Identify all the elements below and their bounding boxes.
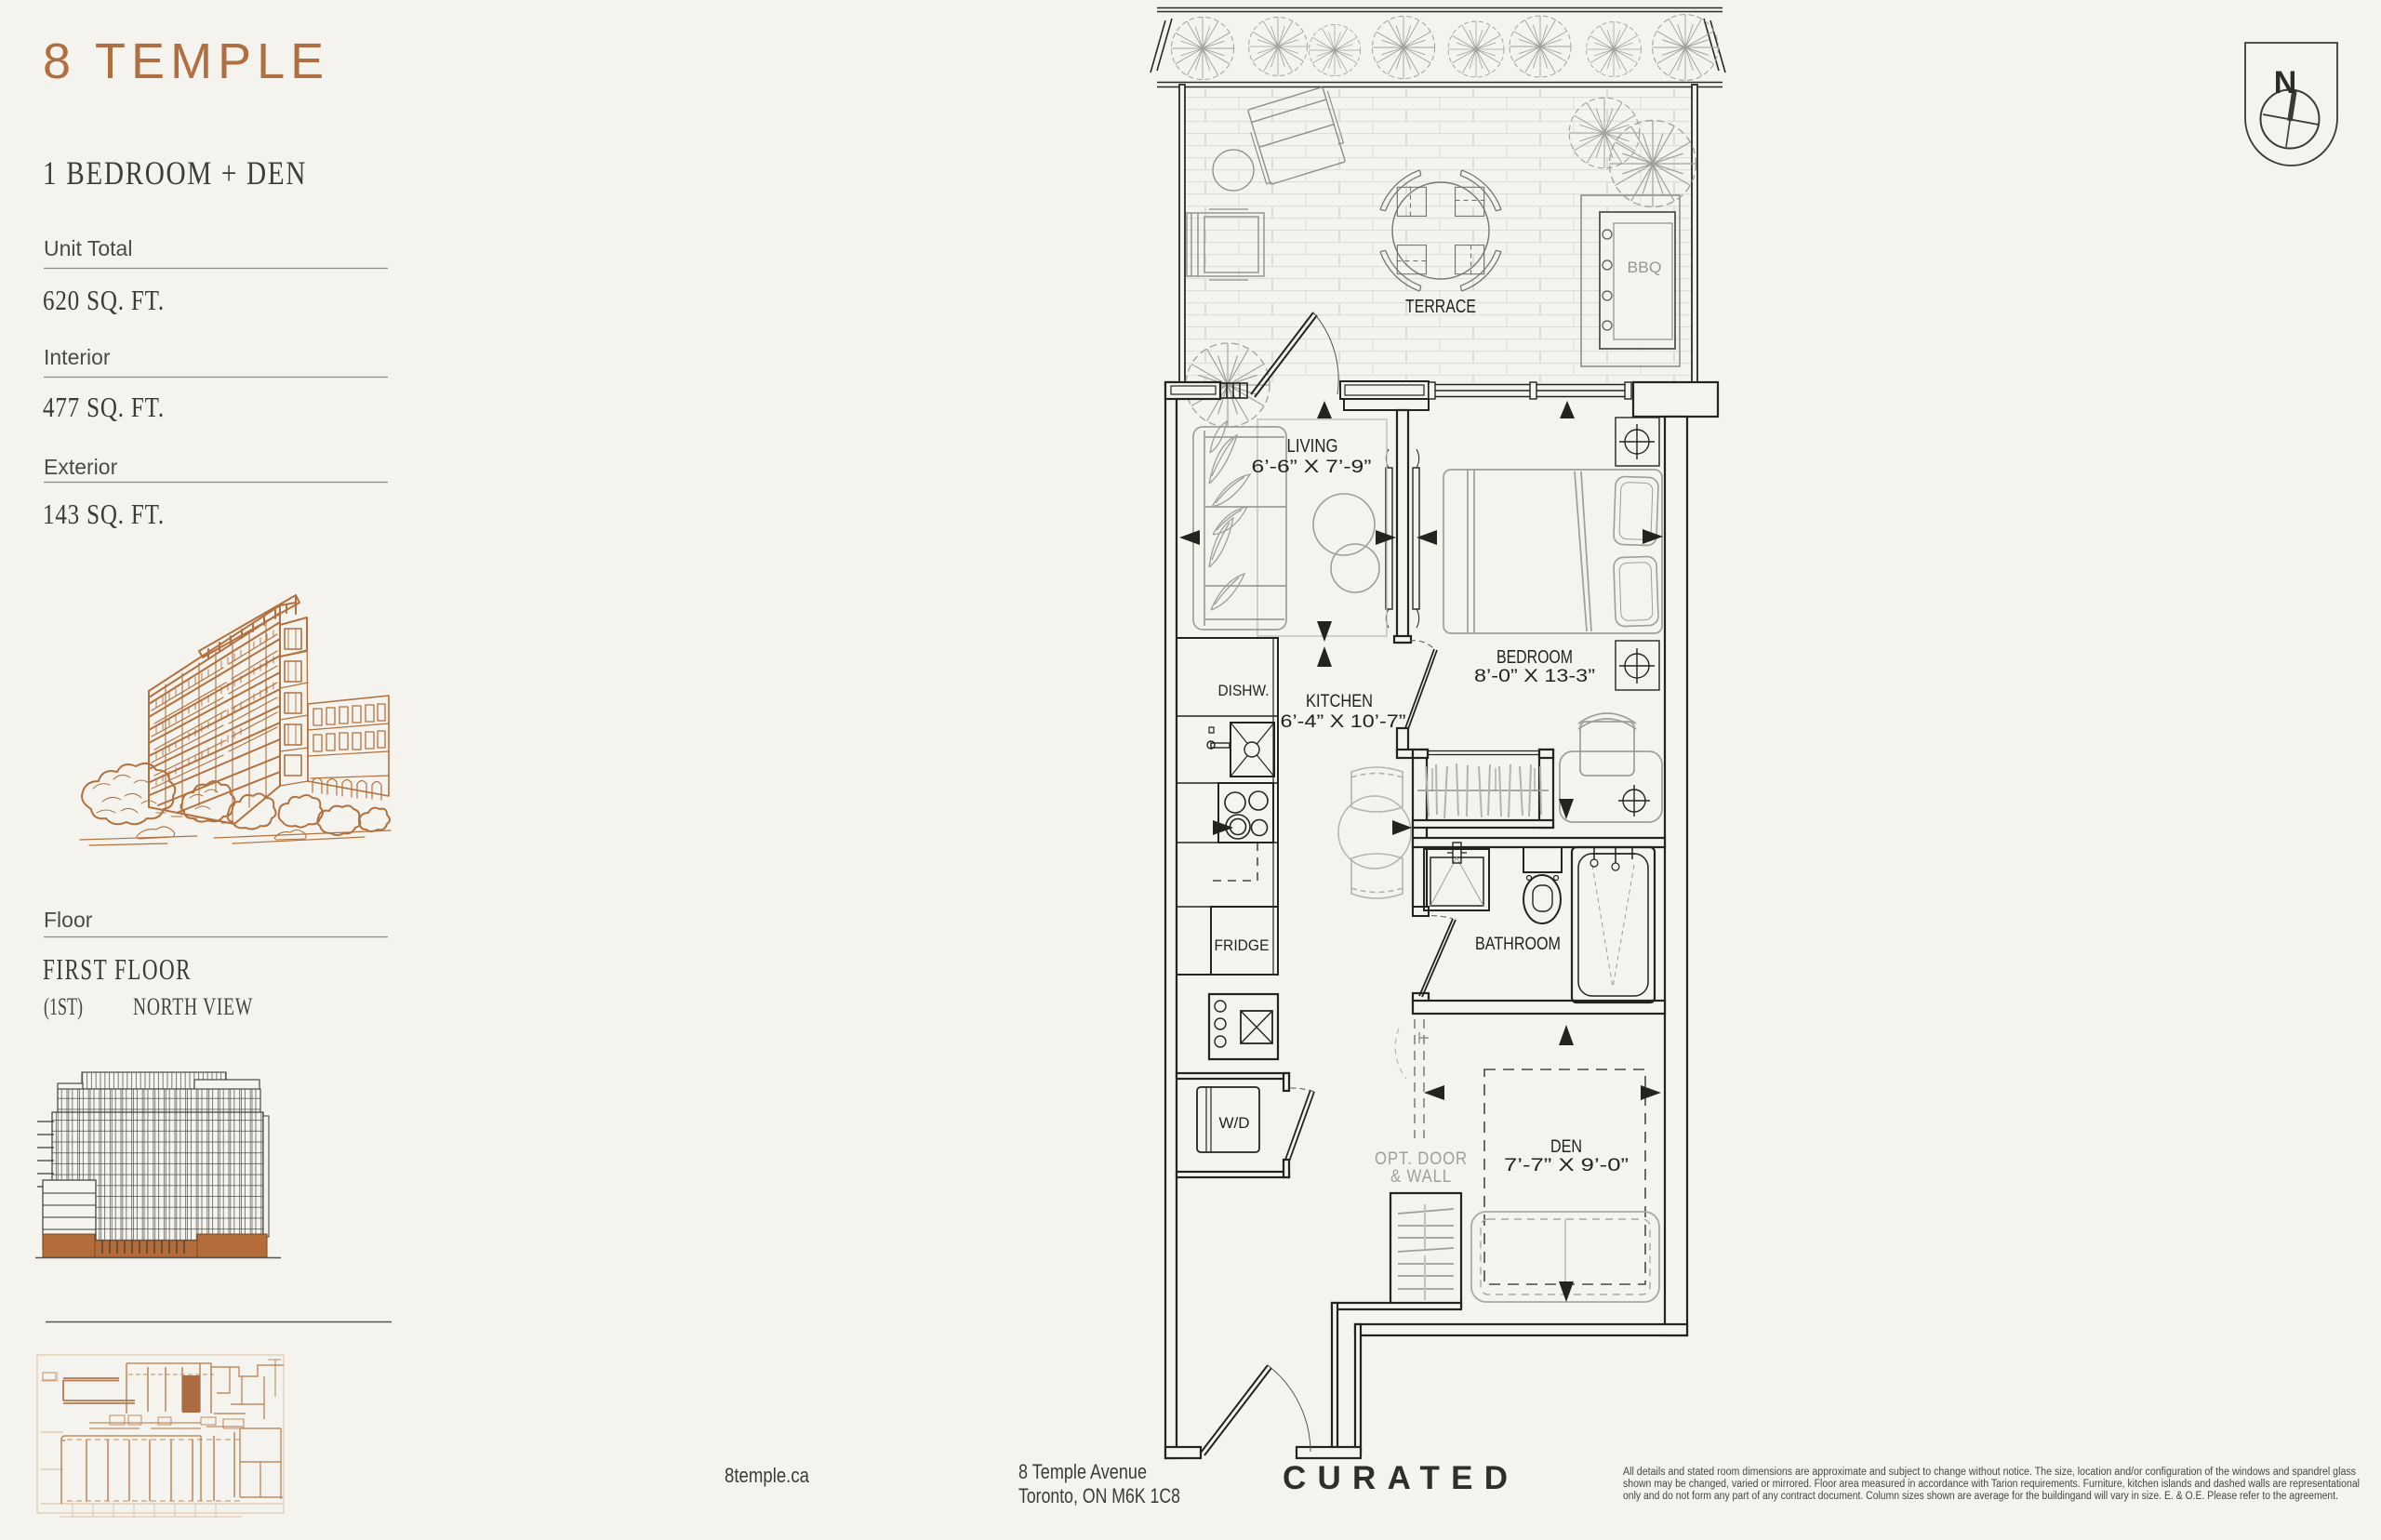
svg-text:Floor: Floor [44,908,93,932]
svg-text:& WALL: & WALL [1390,1167,1452,1187]
svg-text:LIVING: LIVING [1287,436,1338,457]
svg-text:FRIDGE: FRIDGE [1215,936,1270,954]
svg-text:N: N [2274,65,2297,100]
svg-text:Exterior: Exterior [44,455,118,479]
svg-text:DEN: DEN [1550,1137,1582,1157]
svg-text:BBQ: BBQ [1628,259,1662,276]
svg-text:CURATED: CURATED [1283,1460,1521,1496]
svg-text:Toronto, ON M6K 1C8: Toronto, ON M6K 1C8 [1018,1484,1180,1507]
svg-text:1 BEDROOM + DEN: 1 BEDROOM + DEN [43,154,307,192]
svg-text:143 SQ. FT.: 143 SQ. FT. [43,498,165,530]
svg-text:6’-6” X 7’-9”: 6’-6” X 7’-9” [1252,458,1372,477]
svg-text:FIRST FLOOR: FIRST FLOOR [43,952,192,986]
svg-text:shown may be changed, varied o: shown may be changed, varied or mirrored… [1623,1479,2360,1490]
svg-text:8’-0” X 13-3”: 8’-0” X 13-3” [1474,667,1595,686]
svg-text:OPT. DOOR: OPT. DOOR [1375,1149,1468,1169]
svg-text:620 SQ. FT.: 620 SQ. FT. [43,284,165,316]
svg-text:DISHW.: DISHW. [1218,682,1270,699]
svg-text:6’-4” X 10’-7”: 6’-4” X 10’-7” [1281,712,1406,732]
svg-text:W/D: W/D [1218,1114,1249,1132]
svg-text:TERRACE: TERRACE [1405,297,1476,317]
svg-text:Unit Total: Unit Total [44,236,132,260]
svg-text:8 TEMPLE: 8 TEMPLE [43,33,329,89]
svg-text:KITCHEN: KITCHEN [1306,692,1373,711]
svg-text:BATHROOM: BATHROOM [1475,935,1561,954]
svg-text:8 Temple Avenue: 8 Temple Avenue [1018,1460,1147,1483]
svg-text:All details and stated room di: All details and stated room dimensions a… [1623,1467,2356,1478]
svg-text:8temple.ca: 8temple.ca [725,1464,810,1487]
svg-text:477 SQ. FT.: 477 SQ. FT. [43,391,165,423]
svg-text:NORTH VIEW: NORTH VIEW [133,993,253,1020]
svg-text:BEDROOM: BEDROOM [1496,647,1573,668]
svg-text:only and do not form any part: only and do not form any part of any con… [1623,1491,2338,1502]
svg-text:7’-7” X 9’-0”: 7’-7” X 9’-0” [1504,1156,1629,1175]
svg-text:Interior: Interior [44,345,111,369]
svg-text:(1ST): (1ST) [44,993,83,1020]
